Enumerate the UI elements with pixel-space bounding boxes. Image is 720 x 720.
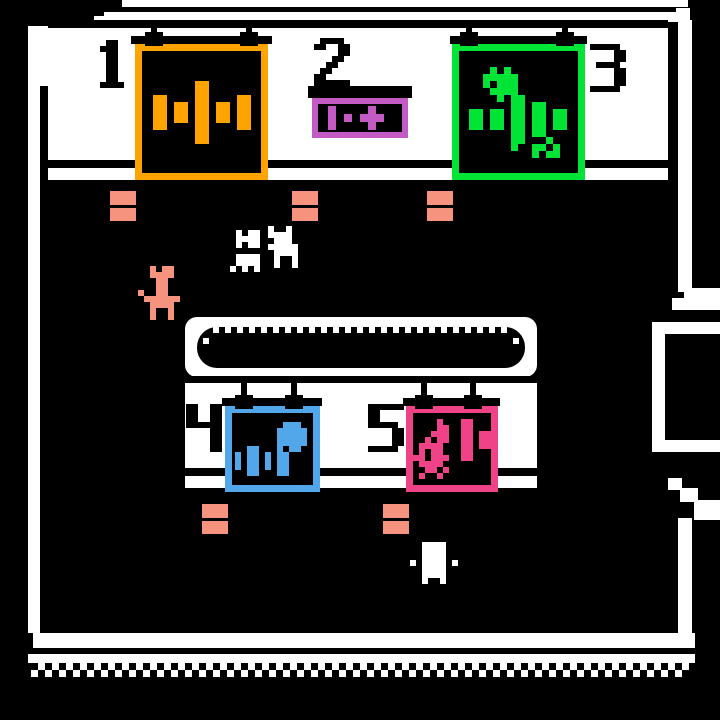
- station-4-number: [186, 404, 222, 452]
- bars-ball-icon: [235, 422, 307, 476]
- room-border-bottom: [33, 633, 695, 648]
- burst-dumbbell-icon: [469, 67, 567, 158]
- hanger-hook: [145, 32, 163, 46]
- wall-step: [684, 288, 720, 310]
- swirl-dumbbell-icon: [413, 419, 491, 479]
- creature-white-a[interactable]: [230, 230, 260, 272]
- game-viewport[interactable]: [0, 0, 720, 720]
- hanger-hook: [556, 32, 574, 46]
- counter-slot-teeth: [213, 327, 509, 333]
- bench-seat: [110, 191, 136, 205]
- hanger-hook: [235, 395, 253, 409]
- room-wall-right: [678, 20, 692, 292]
- wall-step: [672, 298, 686, 310]
- hanger-hook: [464, 395, 482, 409]
- bench-seat: [427, 208, 453, 221]
- station-3-number: [590, 44, 626, 92]
- dumbbell-icon: [153, 81, 251, 144]
- station-1-number: [94, 40, 130, 88]
- hanger-hook: [460, 32, 478, 46]
- bench-seat: [292, 208, 318, 221]
- ceiling-rail: [48, 20, 668, 28]
- station-2-hanger-bar: [308, 86, 412, 98]
- wall-step: [40, 26, 48, 86]
- bench-seat: [110, 208, 136, 221]
- counter-slot[interactable]: [197, 327, 525, 368]
- creature-salmon-goat[interactable]: [138, 266, 186, 320]
- fringe-checker-row: [38, 663, 690, 670]
- hanger-hook: [415, 395, 433, 409]
- station-5-number: [368, 404, 404, 452]
- wall-step: [694, 500, 720, 520]
- room-wall-right-lower: [678, 518, 692, 633]
- doorway-frame-bottom: [652, 440, 720, 452]
- bench-seat: [383, 521, 409, 534]
- counter-slot-notch: [513, 338, 519, 344]
- bench-seat: [202, 521, 228, 534]
- bench-seat: [383, 504, 409, 518]
- fringe-checker-row: [31, 670, 683, 677]
- room-wall-left: [28, 26, 40, 633]
- counter-slot-notch: [203, 338, 209, 344]
- bench-seat: [292, 191, 318, 205]
- sign-add-weight-icon: [328, 106, 392, 130]
- counter-divider: [190, 376, 532, 383]
- bench-seat: [427, 191, 453, 205]
- adjacent-room-edge-top: [122, 0, 688, 7]
- doorway-frame-left: [652, 322, 665, 452]
- bench-seat: [202, 504, 228, 518]
- hanger-hook: [285, 395, 303, 409]
- station-2-number: [314, 38, 350, 86]
- creature-white-c[interactable]: [410, 542, 458, 584]
- creature-white-b[interactable]: [268, 226, 298, 268]
- floor-edge-strip: [28, 654, 695, 663]
- hanger-hook: [240, 32, 258, 46]
